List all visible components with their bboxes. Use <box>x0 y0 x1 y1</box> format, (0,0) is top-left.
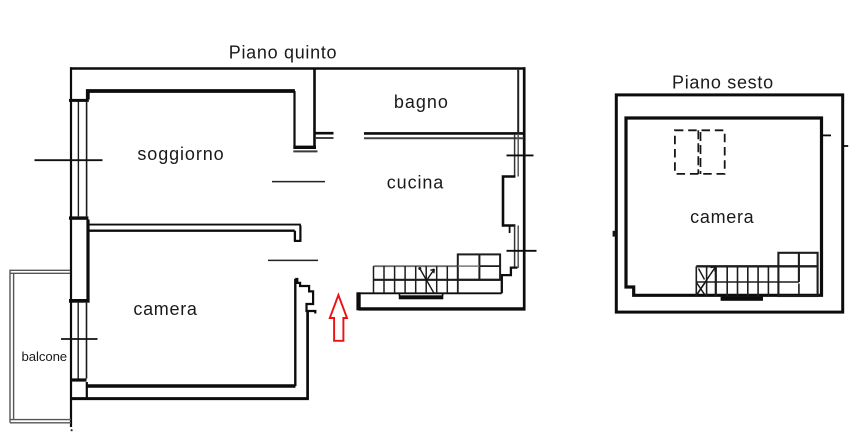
svg-text:camera: camera <box>690 207 755 227</box>
svg-text:soggiorno: soggiorno <box>137 144 224 164</box>
svg-text:camera: camera <box>133 299 198 319</box>
svg-text:Piano sesto: Piano sesto <box>672 72 774 92</box>
svg-text:cucina: cucina <box>387 173 445 193</box>
svg-text:balcone: balcone <box>22 349 68 364</box>
svg-text:bagno: bagno <box>394 92 449 112</box>
svg-text:Piano quinto: Piano quinto <box>229 42 337 62</box>
